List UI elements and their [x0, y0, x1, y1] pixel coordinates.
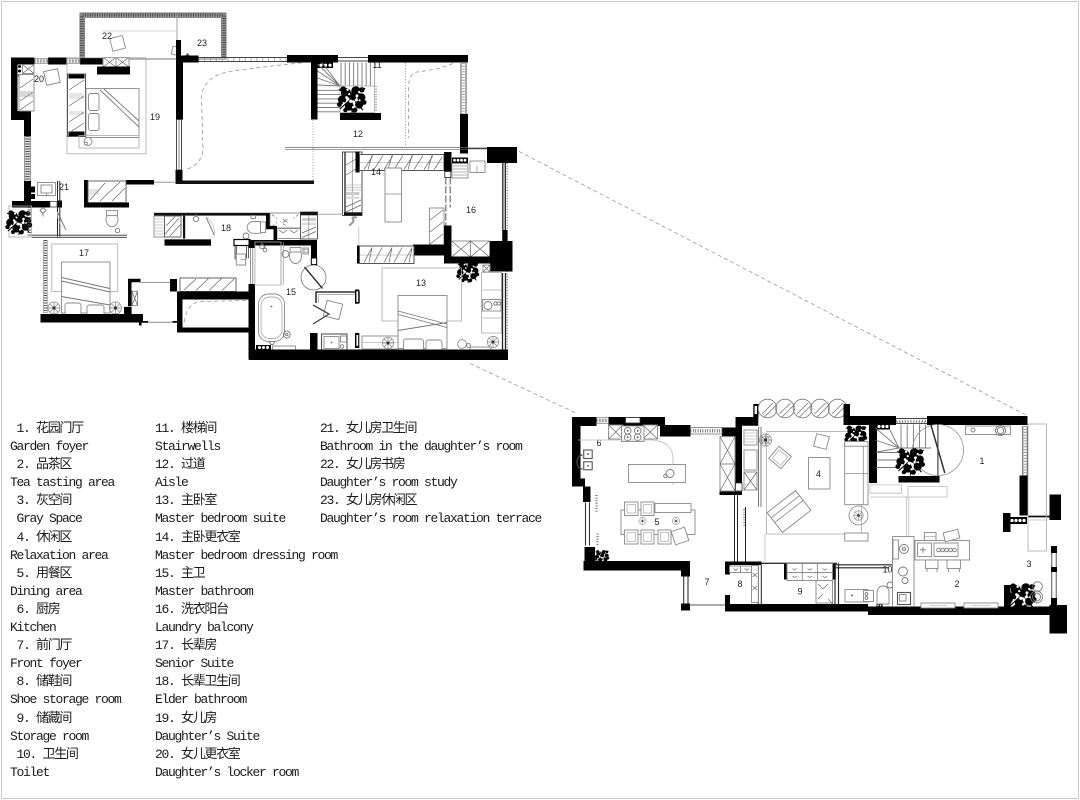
- svg-text:9: 9: [797, 587, 802, 597]
- svg-text:7: 7: [704, 577, 709, 587]
- svg-text:20: 20: [34, 74, 44, 84]
- svg-text:5: 5: [654, 517, 659, 527]
- svg-text:8: 8: [737, 579, 742, 589]
- svg-text:15: 15: [286, 287, 296, 297]
- svg-text:10: 10: [882, 565, 892, 575]
- svg-text:11: 11: [372, 60, 381, 70]
- svg-text:17: 17: [79, 248, 89, 258]
- svg-text:4: 4: [816, 469, 821, 479]
- svg-text:2: 2: [954, 579, 959, 589]
- svg-text:6: 6: [596, 438, 601, 448]
- svg-text:13: 13: [416, 278, 426, 288]
- svg-text:19: 19: [150, 112, 160, 122]
- svg-text:3: 3: [1026, 559, 1031, 569]
- svg-text:22: 22: [102, 31, 112, 41]
- svg-text:14: 14: [371, 167, 381, 177]
- svg-text:16: 16: [466, 205, 476, 215]
- svg-text:21: 21: [59, 182, 69, 192]
- svg-text:12: 12: [353, 129, 363, 139]
- svg-text:18: 18: [221, 223, 231, 233]
- svg-text:1: 1: [979, 456, 984, 466]
- svg-text:23: 23: [197, 38, 207, 48]
